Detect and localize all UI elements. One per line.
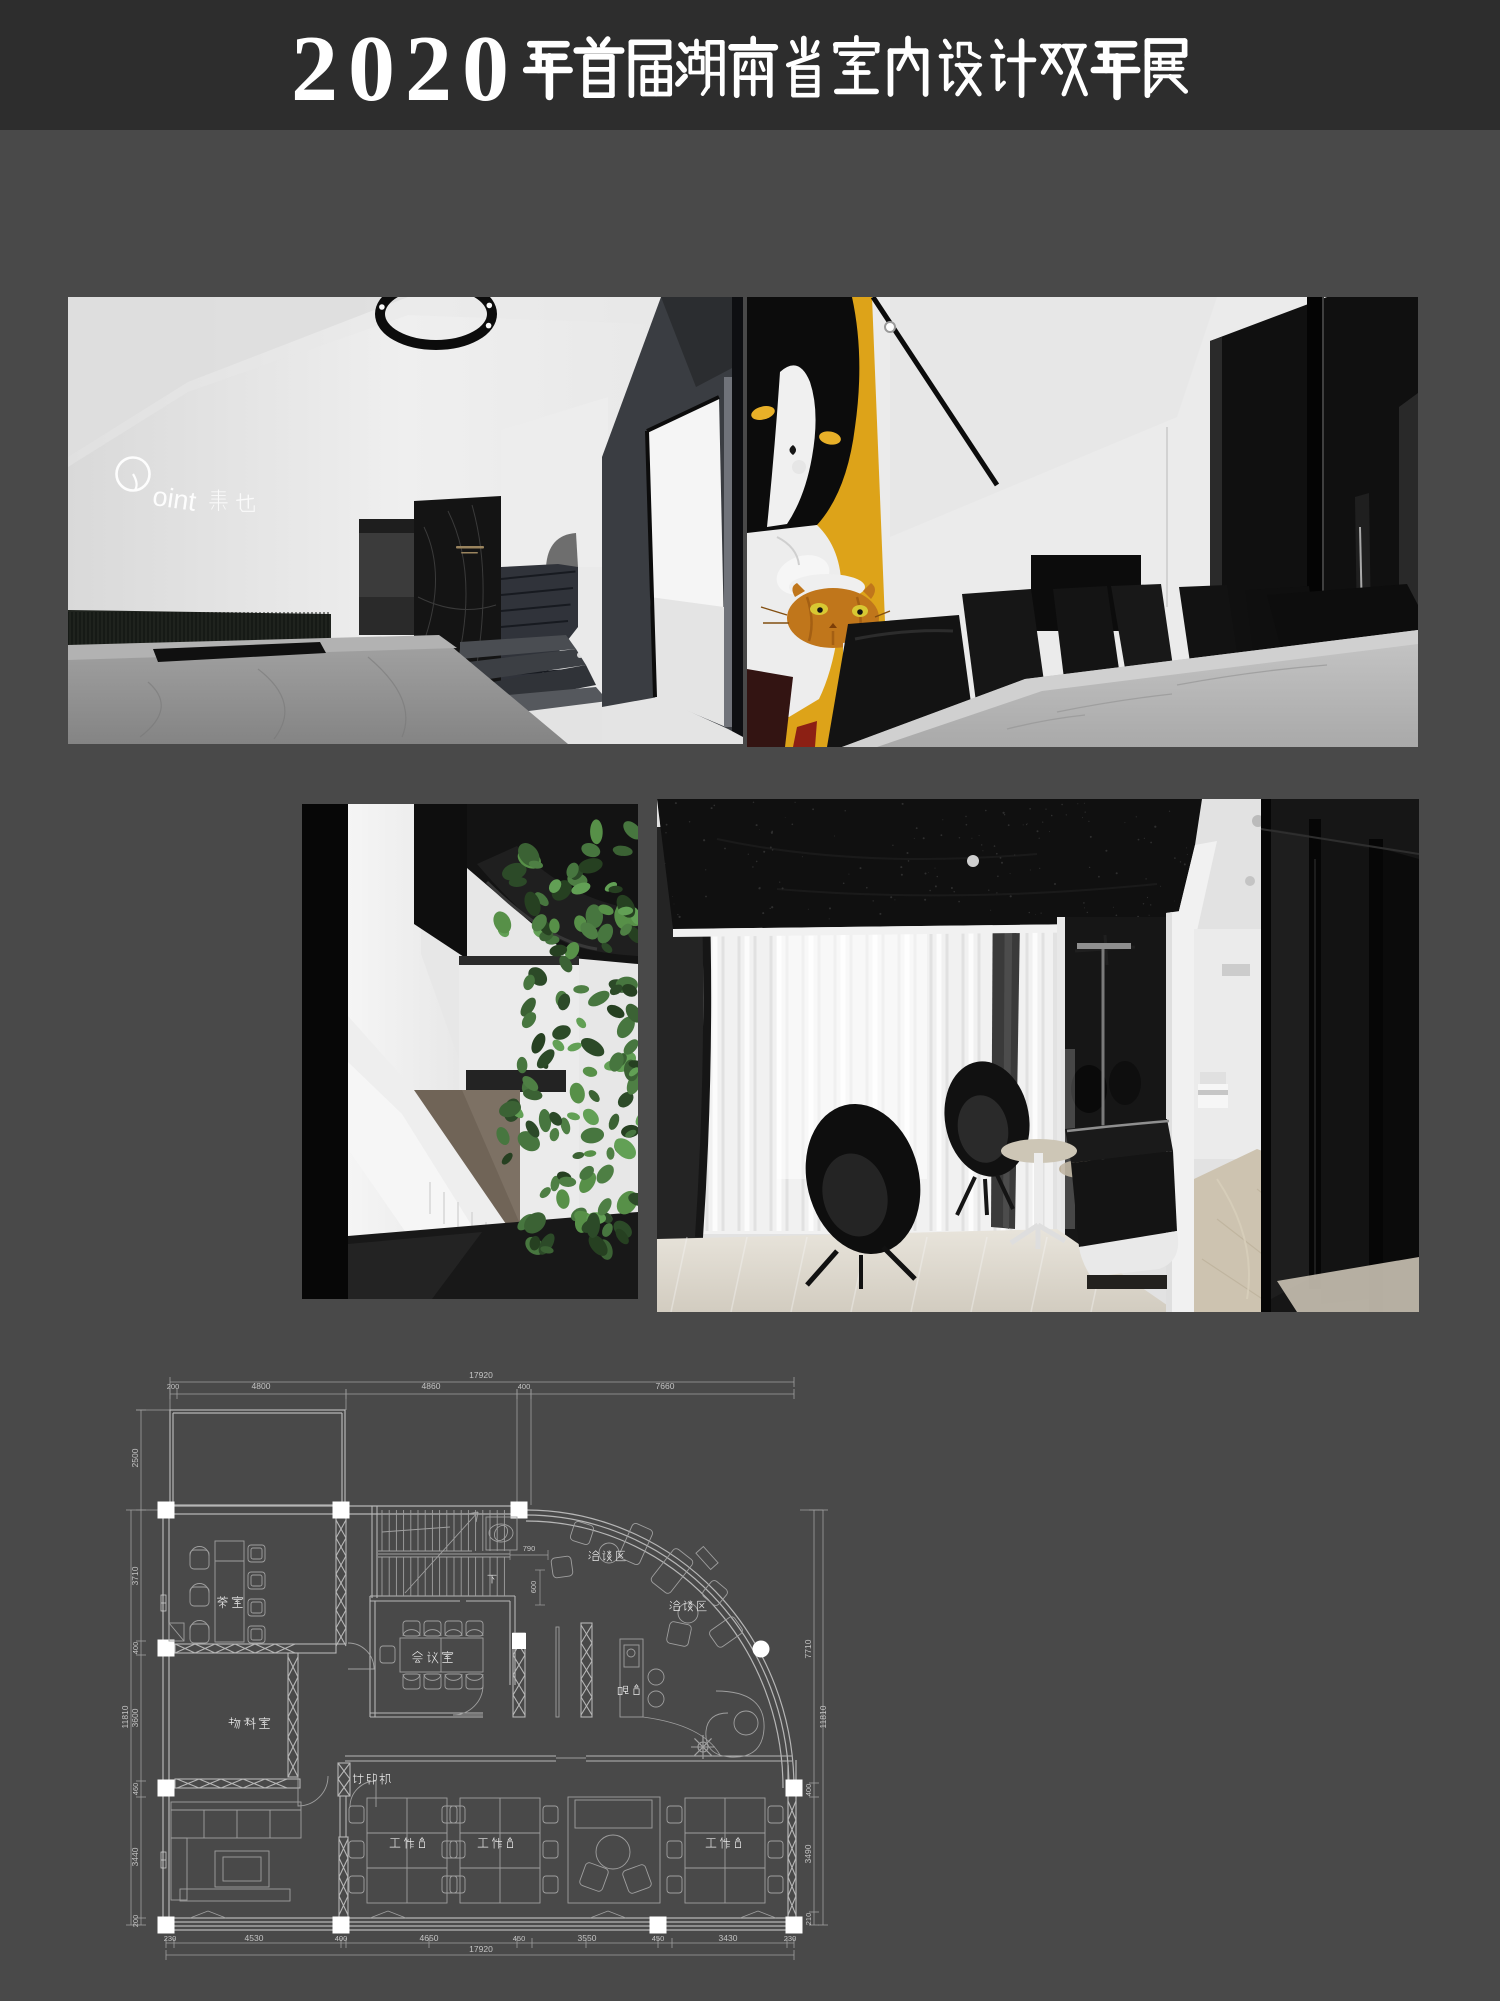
svg-text:450: 450 [652,1934,665,1943]
svg-text:2500: 2500 [130,1448,140,1467]
svg-text:4650: 4650 [420,1933,439,1943]
svg-text:460: 460 [131,1783,140,1796]
svg-text:4860: 4860 [422,1381,441,1391]
svg-text:230: 230 [784,1934,797,1943]
svg-text:17920: 17920 [469,1944,493,1954]
svg-text:790: 790 [523,1544,536,1553]
svg-text:3440: 3440 [130,1847,140,1866]
svg-text:7660: 7660 [656,1381,675,1391]
svg-text:600: 600 [529,1581,538,1594]
svg-text:4530: 4530 [245,1933,264,1943]
svg-text:11810: 11810 [818,1705,828,1728]
svg-text:3490: 3490 [803,1844,813,1863]
svg-text:400: 400 [518,1382,531,1391]
svg-text:11810: 11810 [120,1705,130,1728]
svg-text:17920: 17920 [469,1370,493,1380]
svg-text:230: 230 [164,1934,177,1943]
svg-text:3550: 3550 [578,1933,597,1943]
svg-text:3710: 3710 [130,1566,140,1585]
svg-text:400: 400 [131,1642,140,1655]
svg-text:450: 450 [513,1934,526,1943]
svg-text:7710: 7710 [803,1639,813,1658]
svg-text:2020: 2020 [291,17,519,121]
svg-text:3600: 3600 [130,1708,140,1727]
svg-text:200: 200 [131,1915,140,1928]
svg-text:3430: 3430 [719,1933,738,1943]
svg-text:4800: 4800 [252,1381,271,1391]
svg-text:200: 200 [167,1382,180,1391]
svg-text:400: 400 [335,1934,348,1943]
svg-text:oint: oint [151,481,199,517]
svg-text:210: 210 [804,1913,813,1926]
svg-text:400: 400 [804,1784,813,1797]
